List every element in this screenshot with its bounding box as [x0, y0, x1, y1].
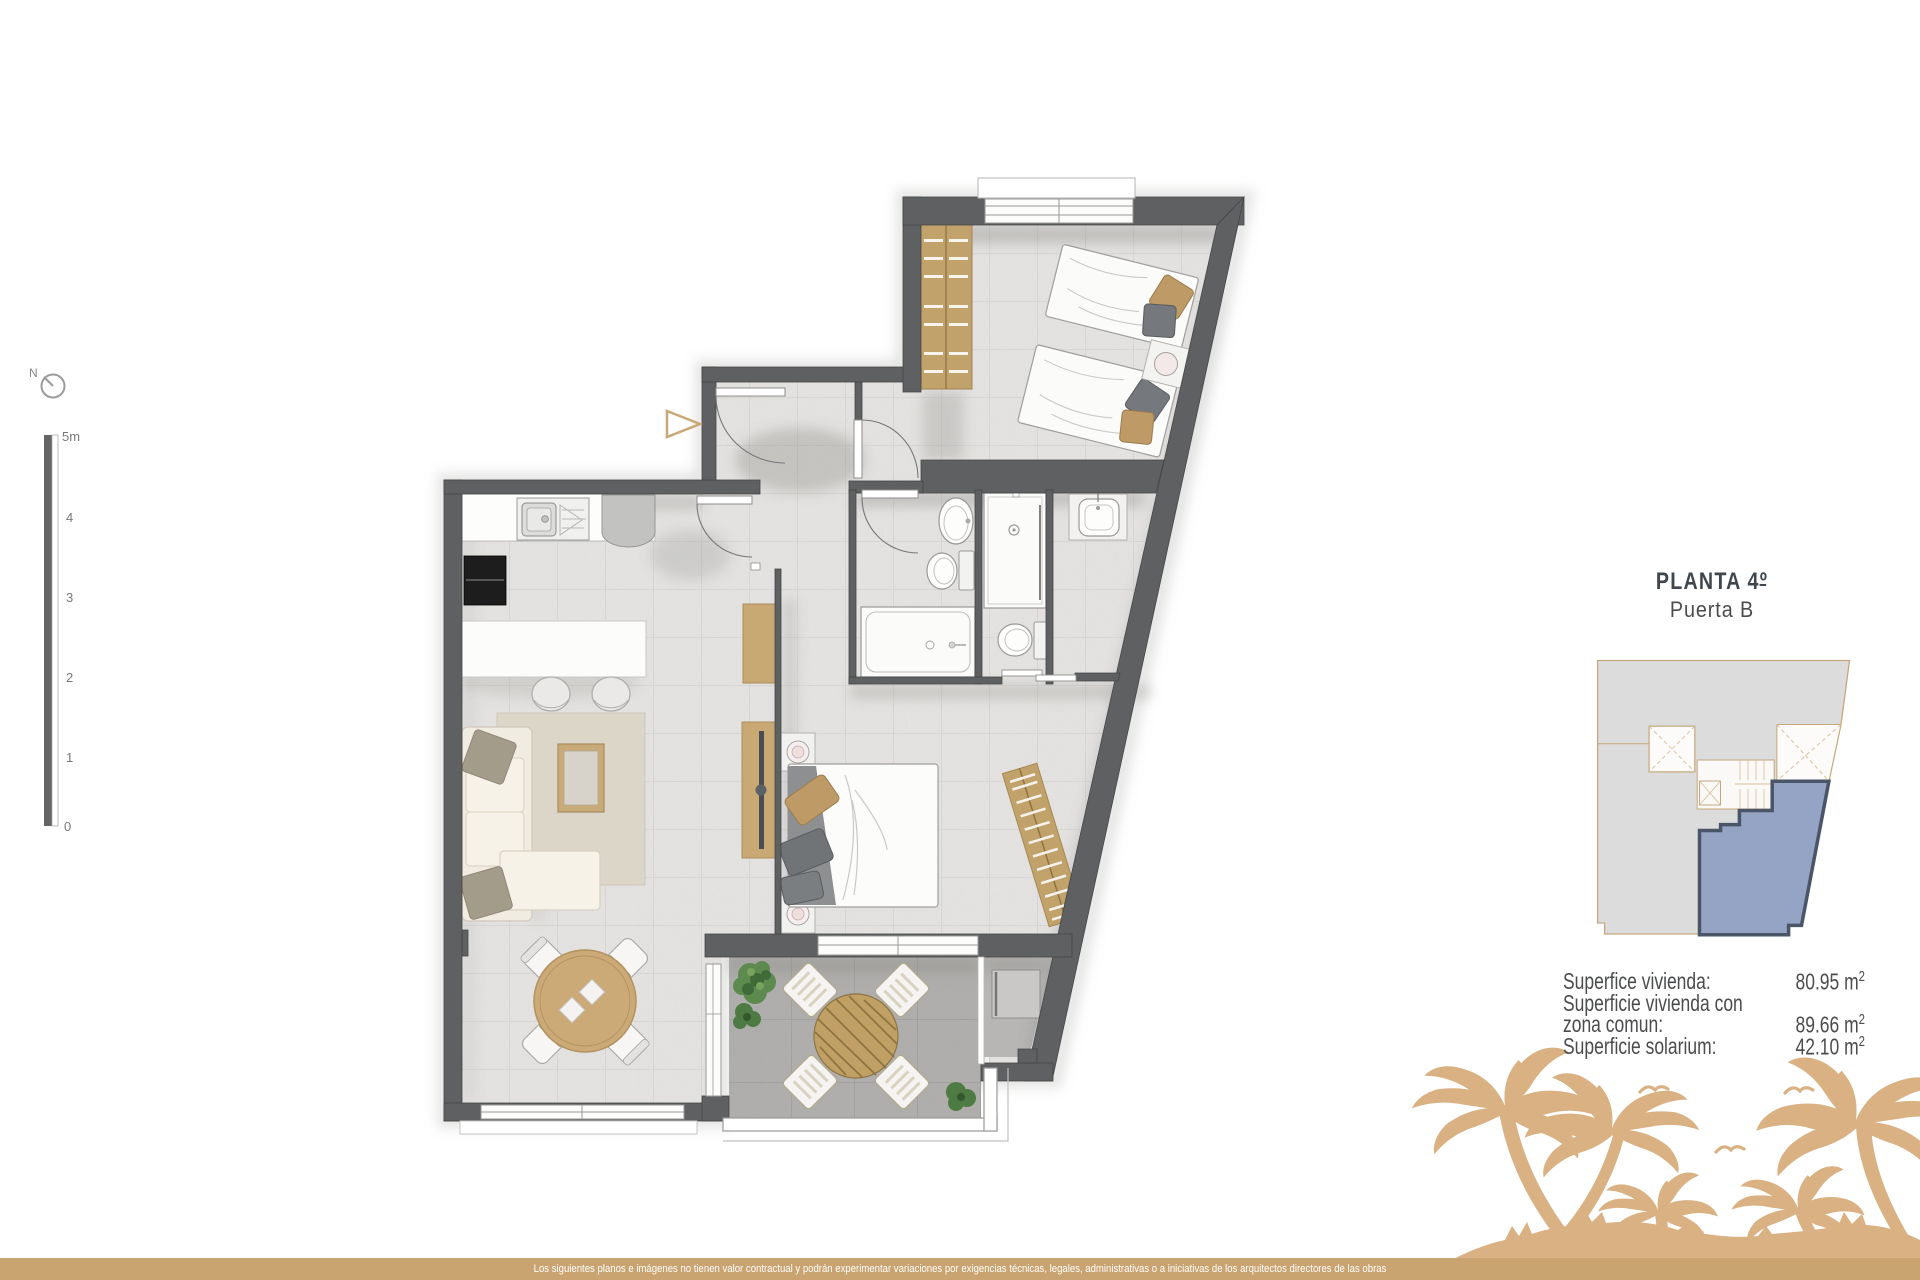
svg-text:0: 0 [64, 819, 71, 834]
svg-text:4: 4 [66, 510, 73, 525]
svg-text:5m: 5m [62, 429, 80, 444]
svg-text:N: N [29, 366, 38, 380]
svg-text:3: 3 [66, 590, 73, 605]
svg-text:2: 2 [66, 670, 73, 685]
svg-text:1: 1 [66, 750, 73, 765]
